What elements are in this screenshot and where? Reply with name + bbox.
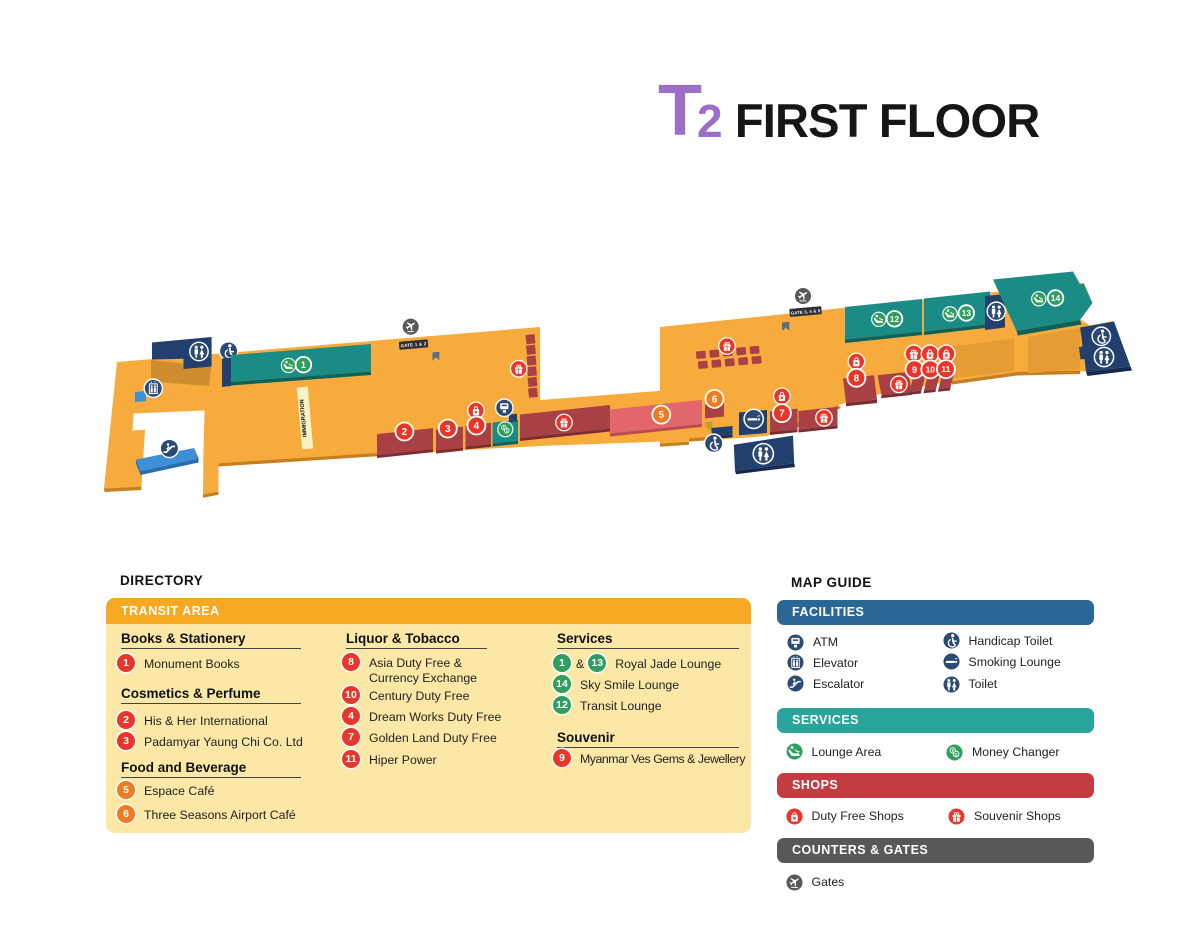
svg-text:3: 3 bbox=[445, 424, 451, 435]
svg-text:1: 1 bbox=[301, 360, 306, 370]
svg-text:5: 5 bbox=[659, 410, 665, 421]
svg-text:9: 9 bbox=[912, 365, 917, 376]
svg-text:4: 4 bbox=[474, 421, 480, 432]
svg-text:10: 10 bbox=[926, 364, 936, 374]
svg-text:12: 12 bbox=[890, 314, 900, 324]
svg-text:7: 7 bbox=[779, 409, 785, 420]
svg-text:13: 13 bbox=[962, 308, 972, 318]
svg-text:2: 2 bbox=[402, 427, 408, 438]
svg-text:6: 6 bbox=[712, 395, 718, 406]
svg-text:8: 8 bbox=[854, 373, 860, 384]
svg-text:11: 11 bbox=[941, 364, 950, 374]
svg-text:14: 14 bbox=[1051, 293, 1061, 303]
